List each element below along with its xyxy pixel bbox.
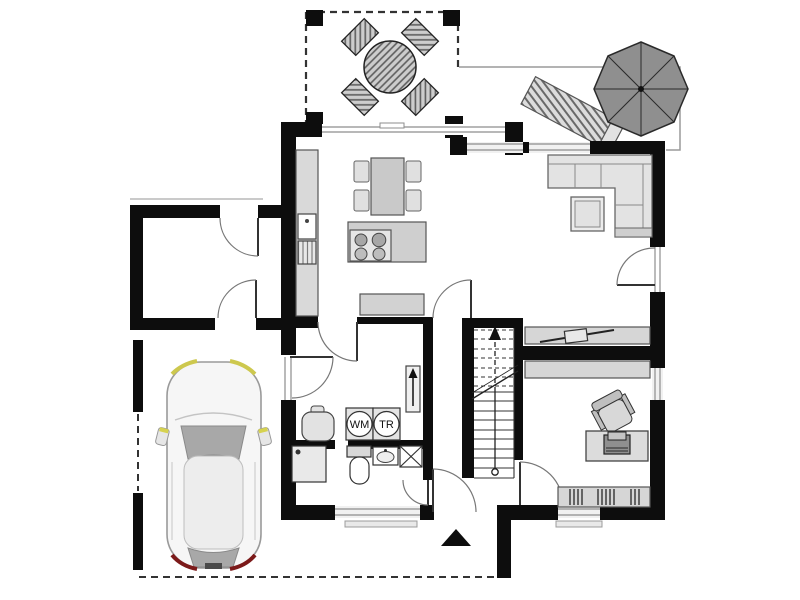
- dining-table-set: [354, 158, 421, 215]
- office-chair: [588, 388, 638, 437]
- toilet: [347, 446, 371, 484]
- car: [155, 361, 272, 569]
- south-window-1: [335, 506, 420, 527]
- bookshelf: [558, 487, 650, 507]
- washbasin: [373, 447, 398, 465]
- tv-lowboard: [525, 327, 650, 344]
- terrace-table: [364, 41, 416, 93]
- parasol: [594, 42, 688, 136]
- washing-machine-label: WM: [350, 419, 370, 431]
- office-sideboard: [525, 361, 650, 378]
- storage-room-walls: [130, 205, 296, 330]
- shaft: [400, 446, 422, 467]
- car-roof: [184, 456, 243, 549]
- stairs: [472, 326, 518, 478]
- dryer-label: TR: [379, 419, 394, 431]
- floor-plan-drawing: WM TR: [0, 0, 800, 600]
- sliding-terrace-door: [322, 123, 505, 135]
- east-window: [652, 368, 663, 400]
- entrance-arrow: [441, 529, 471, 546]
- terrace-table-set: [342, 19, 439, 116]
- washing-machine: WM: [346, 408, 373, 440]
- floor-plan-canvas: WM TR: [0, 0, 800, 600]
- heater-duct: [406, 366, 420, 412]
- dining-chair: [406, 161, 421, 182]
- car-license-plate: [205, 563, 222, 569]
- south-window-2: [556, 506, 602, 527]
- kitchen-island-cooktop: [348, 222, 426, 262]
- dryer: TR: [373, 408, 400, 440]
- dining-chair: [354, 161, 369, 182]
- carport-side-door-glazing: [283, 357, 294, 400]
- kitchen-sink: [298, 214, 316, 239]
- laundry-basket: [302, 406, 334, 441]
- storage-doors: [218, 218, 258, 318]
- shower: [292, 446, 326, 482]
- dining-table: [371, 158, 404, 215]
- coffee-table: [571, 197, 604, 231]
- kitchen-counter: [296, 150, 318, 316]
- desk: [586, 431, 648, 461]
- kitchen-sideboard: [360, 294, 424, 315]
- laptop: [604, 432, 630, 454]
- north-window: [467, 142, 590, 153]
- dishwasher: [298, 241, 316, 264]
- car-windshield: [181, 426, 246, 459]
- dining-chair: [354, 190, 369, 211]
- stair-direction-arrow: [489, 326, 501, 340]
- dining-chair: [406, 190, 421, 211]
